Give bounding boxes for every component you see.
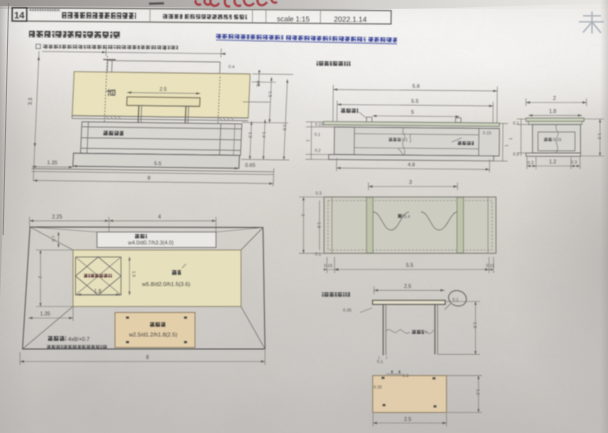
svg-text:2.5: 2.5 — [404, 417, 411, 423]
svg-text:0.1: 0.1 — [377, 359, 384, 364]
svg-text:1.8: 1.8 — [94, 289, 101, 295]
svg-text:2.5: 2.5 — [404, 284, 411, 290]
svg-text:4: 4 — [158, 215, 161, 221]
svg-text:3: 3 — [409, 180, 412, 186]
svg-text:0.15: 0.15 — [324, 263, 333, 268]
svg-text:1.2: 1.2 — [476, 389, 481, 396]
svg-text:0.1: 0.1 — [453, 297, 460, 302]
svg-text:4x8/+0.7: 4x8/+0.7 — [68, 337, 90, 343]
svg-text:1.35: 1.35 — [40, 312, 50, 318]
svg-text:2: 2 — [553, 96, 556, 102]
svg-text:1.5: 1.5 — [268, 91, 273, 98]
svg-text:8: 8 — [146, 355, 149, 361]
svg-text:0.3: 0.3 — [571, 160, 578, 165]
svg-text:1.3: 1.3 — [248, 132, 253, 139]
svg-text:0.2: 0.2 — [513, 152, 520, 157]
svg-text:0.3: 0.3 — [316, 191, 323, 196]
svg-text:5.5: 5.5 — [154, 161, 162, 167]
svg-text:0.7: 0.7 — [51, 235, 56, 242]
svg-text:0.3: 0.3 — [528, 160, 535, 165]
svg-text:0.15: 0.15 — [483, 130, 492, 135]
svg-text:2.5: 2.5 — [159, 87, 167, 93]
svg-text:4: 4 — [163, 46, 166, 52]
svg-text:w4.0/d0.7/h3.3(4.0): w4.0/d0.7/h3.3(4.0) — [128, 241, 174, 247]
svg-text:0.2: 0.2 — [315, 148, 322, 153]
svg-text:14: 14 — [14, 10, 25, 20]
svg-text:5.5: 5.5 — [406, 263, 413, 269]
svg-text:scale 1:15: scale 1:15 — [277, 14, 310, 23]
svg-text:0.15: 0.15 — [553, 137, 562, 142]
svg-text:2.8: 2.8 — [282, 124, 287, 131]
svg-text:0.35: 0.35 — [343, 308, 352, 313]
svg-text:w2.5/d1.2/h1.8(2.5): w2.5/d1.2/h1.8(2.5) — [128, 333, 177, 339]
svg-text:2.25: 2.25 — [52, 215, 62, 221]
svg-text:5.5: 5.5 — [411, 99, 418, 105]
svg-text:0.35: 0.35 — [374, 385, 383, 390]
svg-text:1.8: 1.8 — [549, 109, 556, 115]
svg-text:0.1: 0.1 — [314, 132, 321, 137]
svg-text:0.1: 0.1 — [402, 137, 409, 142]
svg-text:0.4: 0.4 — [228, 64, 235, 69]
svg-text:4.8: 4.8 — [408, 162, 415, 168]
svg-text:0.15: 0.15 — [315, 122, 324, 127]
svg-text:1.8: 1.8 — [317, 222, 322, 229]
svg-text:0.1: 0.1 — [315, 252, 322, 257]
svg-text:0.65: 0.65 — [245, 163, 256, 169]
svg-text:1.2: 1.2 — [549, 160, 556, 166]
svg-text:w5.8/d2.0/h1.5(3.6): w5.8/d2.0/h1.5(3.6) — [141, 282, 190, 288]
svg-text:1.8: 1.8 — [473, 322, 478, 329]
svg-text:2022.1.14: 2022.1.14 — [334, 15, 367, 24]
svg-text:5.4: 5.4 — [404, 214, 411, 219]
svg-text:8: 8 — [147, 175, 150, 181]
svg-text:1.35: 1.35 — [47, 160, 58, 166]
svg-text:0.1: 0.1 — [513, 121, 520, 126]
svg-text:0.3: 0.3 — [403, 373, 410, 378]
svg-text:5: 5 — [411, 110, 414, 116]
svg-text:5.8: 5.8 — [412, 84, 419, 90]
svg-text:1.5: 1.5 — [132, 271, 137, 278]
svg-text:3.3: 3.3 — [28, 98, 34, 105]
svg-text:1.3: 1.3 — [597, 133, 602, 140]
svg-text:0.5: 0.5 — [256, 81, 261, 88]
svg-text:1.4: 1.4 — [261, 132, 266, 139]
